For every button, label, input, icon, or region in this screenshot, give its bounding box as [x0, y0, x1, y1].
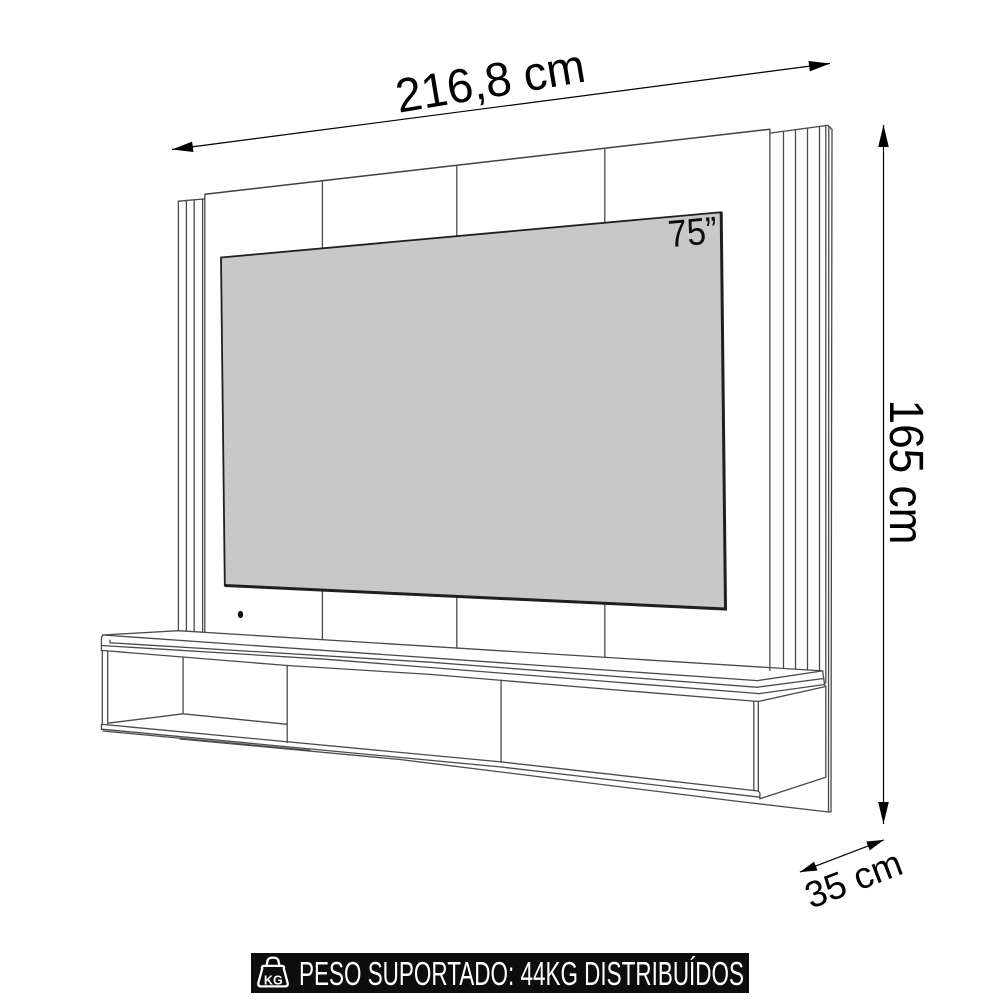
- svg-text:75”: 75”: [666, 210, 719, 256]
- svg-text:KG: KG: [264, 973, 283, 987]
- svg-text:PESO SUPORTADO: 44KG DISTRIBUÍ: PESO SUPORTADO: 44KG DISTRIBUÍDOS: [299, 955, 744, 992]
- svg-text:165 cm: 165 cm: [879, 400, 932, 545]
